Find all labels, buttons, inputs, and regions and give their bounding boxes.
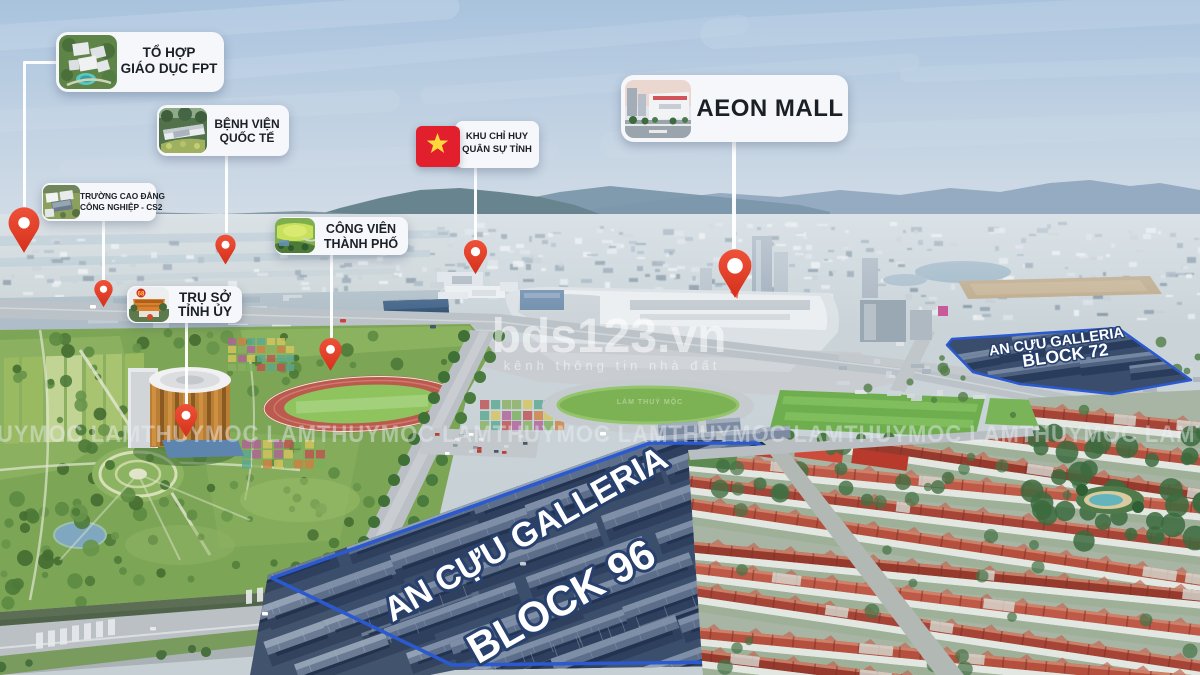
svg-text:68: 68 [138,292,145,298]
svg-text:LÀM THUỶ MỘC: LÀM THUỶ MỘC [617,397,683,406]
